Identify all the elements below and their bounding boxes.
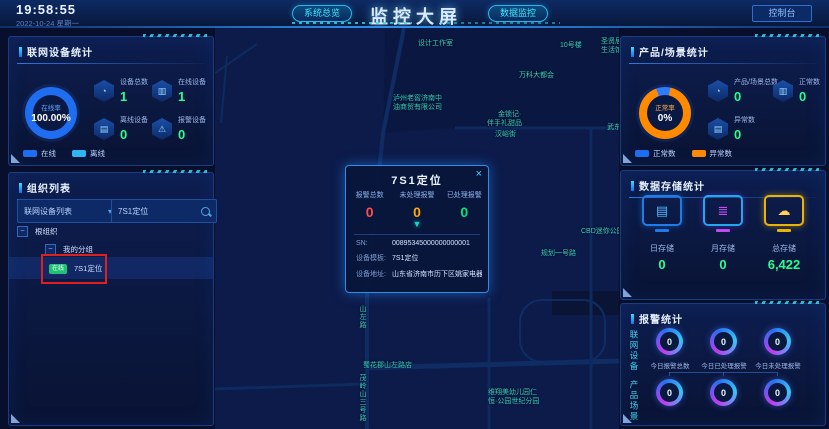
map-label: 恒·公园世纪分园	[488, 396, 539, 406]
map-label: 蜀花郡山左路店	[363, 360, 412, 370]
search-value: 7S1定位	[118, 206, 148, 217]
gauge-value: 0	[768, 332, 787, 351]
stat-label: 异常数	[734, 115, 755, 125]
legend-label: 在线	[41, 148, 56, 159]
title-accent-bar	[631, 181, 634, 191]
legend-swatch	[692, 150, 706, 157]
gauge-today-handled: 0	[710, 328, 737, 355]
map-label: 规划一号路	[541, 248, 576, 258]
storage-value: 0	[631, 257, 693, 272]
close-icon[interactable]: ×	[476, 169, 482, 180]
clock: 19:58:55 2022-10-24 星期一	[16, 2, 79, 29]
tree-label: 7S1定位	[74, 263, 102, 274]
gauge-label: 今日已处理报警	[693, 360, 755, 370]
stat-value: 1	[120, 89, 148, 104]
gauge-value: 0	[768, 383, 787, 402]
time-text: 19:58:55	[16, 2, 79, 17]
device-stats-panel: 联网设备统计 在线率 100.00% ◔ 设备总数 1 ▥ 在线设备 1 ▤ 离…	[8, 36, 214, 166]
donut-value: 100.00%	[31, 113, 70, 124]
popup-title: 7S1定位	[346, 172, 488, 188]
stat-value: 1	[178, 89, 206, 104]
stat-label: 产品/场景总数	[734, 77, 778, 87]
collapse-icon[interactable]: −	[45, 244, 56, 255]
normal-rate-donut: 正常率 0%	[639, 87, 691, 139]
map-label: CBD迷你公园	[581, 226, 619, 236]
stat-product-total: ◔ 产品/场景总数 0	[708, 77, 778, 104]
gauge-product-handled: 0	[710, 379, 737, 406]
gauge-product-total: 0	[656, 379, 683, 406]
gauge-value: 0	[714, 332, 733, 351]
legend-online: 在线	[23, 148, 56, 159]
collapse-icon[interactable]: −	[17, 226, 28, 237]
org-list-panel: 组织列表 联网设备列表 ▾ 7S1定位 − 根组织 − 我的分组 在线 7S1定…	[8, 172, 214, 426]
title-underline	[629, 63, 817, 64]
device-popup: × 7S1定位 报警总数 0 未处理报警 0 已处理报警 0 ▼ SN: 008…	[345, 165, 489, 293]
monitor-stand	[777, 229, 791, 232]
top-header: 19:58:55 2022-10-24 星期一 系统总览 监控大屏 数据监控 控…	[0, 0, 829, 28]
stat-label: 报警总数	[346, 190, 393, 200]
popup-stat-unhandled: 未处理报警 0	[393, 190, 440, 220]
group-label-products: 产品场景	[628, 380, 640, 422]
title-accent-bar	[631, 47, 634, 57]
popup-field-address: 设备地址: 山东省济南市历下区姚家电器规划一—…	[356, 269, 482, 279]
map-label: 设计工作室	[418, 38, 453, 48]
legend-label: 离线	[90, 148, 105, 159]
map-label: 伴手礼甜品	[487, 118, 522, 128]
popup-stat-handled: 已处理报警 0	[441, 190, 488, 220]
device-list-dropdown[interactable]: 联网设备列表 ▾	[17, 199, 119, 223]
stat-label: 正常数	[799, 77, 820, 87]
stat-value: 0	[393, 204, 440, 220]
stat-label: 已处理报警	[441, 190, 488, 200]
database-icon: ≣	[718, 204, 729, 217]
stat-device-total: ◔ 设备总数 1	[94, 77, 148, 104]
field-label: SN:	[356, 240, 392, 247]
legend-swatch	[72, 150, 86, 157]
tree-node-device[interactable]: 在线 7S1定位	[49, 263, 102, 274]
search-icon	[201, 207, 210, 216]
legend-swatch	[635, 150, 649, 157]
stat-product-abnormal: ▤ 异常数 0	[708, 115, 755, 142]
panel-title: 联网设备统计	[27, 44, 93, 59]
map-label: 油商贸有限公司	[393, 102, 442, 112]
gauge-today-total: 0	[656, 328, 683, 355]
storage-daily: ▤ 日存储 0	[631, 195, 693, 272]
field-label: 设备地址:	[356, 269, 392, 279]
stat-value: 0	[734, 127, 755, 142]
tree-label: 根组织	[35, 226, 58, 237]
field-value: 00895345000000000001	[392, 240, 470, 247]
donut-label: 在线率	[41, 102, 61, 112]
legend-label: 正常数	[653, 148, 676, 159]
bracket-tick	[777, 372, 778, 376]
legend-offline: 离线	[72, 148, 105, 159]
popup-field-template: 设备模板: 7S1定位	[356, 253, 482, 263]
stat-value: 0	[441, 204, 488, 220]
panel-title: 组织列表	[27, 180, 71, 195]
stat-device-online: ▥ 在线设备 1	[152, 77, 206, 104]
product-stats-panel: 产品/场景统计 正常率 0% ◔ 产品/场景总数 0 ▥ 正常数 0 ▤ 异常数…	[620, 36, 826, 166]
stat-value: 0	[346, 204, 393, 220]
storage-label: 月存储	[692, 243, 754, 254]
pie-icon: ◔	[94, 80, 114, 102]
stat-value: 0	[734, 89, 778, 104]
stat-label: 报警设备	[178, 115, 206, 125]
stat-label: 在线设备	[178, 77, 206, 87]
tree-label: 我的分组	[63, 244, 93, 255]
gauge-label: 今日报警总数	[639, 360, 701, 370]
gauge-value: 0	[660, 383, 679, 402]
product-legend: 正常数 异常数	[635, 148, 732, 159]
header-deco-dots	[440, 22, 560, 24]
map-label: 生活馆	[601, 45, 619, 55]
title-accent-bar	[19, 47, 22, 57]
map-label: 万科大都会	[519, 70, 554, 80]
dropdown-value: 联网设备列表	[24, 206, 72, 217]
abnormal-icon: ▤	[708, 118, 728, 140]
legend-swatch	[23, 150, 37, 157]
monitor-stand	[716, 229, 730, 232]
gauge-label: 今日未处理报警	[747, 360, 809, 370]
stat-value: 0	[120, 127, 148, 142]
title-accent-bar	[631, 314, 634, 324]
map-marker-icon: ▼	[346, 219, 488, 229]
legend-label: 异常数	[710, 148, 733, 159]
bracket-tick	[723, 372, 724, 376]
pie-icon: ◔	[708, 80, 728, 102]
storage-monthly: ≣ 月存储 0	[692, 195, 754, 272]
stat-product-normal: ▥ 正常数 0	[773, 77, 820, 104]
panel-title: 数据存储统计	[639, 178, 705, 193]
gauge-today-unhandled: 0	[764, 328, 791, 355]
header-deco-dots	[292, 22, 412, 24]
popup-field-sn: SN: 00895345000000000001	[356, 240, 482, 247]
popup-divider	[354, 234, 480, 235]
map-area[interactable]: 设计工作室 10号楼 圣贤居 生活馆 万科大都会 泸州老窖济南中 油商贸有限公司…	[215, 28, 619, 429]
legend-abnormal: 异常数	[692, 148, 733, 159]
map-label: 山左路	[357, 305, 367, 329]
panel-title: 报警统计	[639, 311, 683, 326]
selected-row-highlight	[9, 257, 213, 279]
field-value: 7S1定位	[392, 253, 418, 263]
stat-label: 未处理报警	[393, 190, 440, 200]
storage-stats-panel: 数据存储统计 ▤ 日存储 0 ≣ 月存储 0 ☁↑ 总存储 6,422	[620, 170, 826, 300]
legend-normal: 正常数	[635, 148, 676, 159]
bracket-tick	[669, 372, 670, 376]
online-status-badge: 在线	[49, 264, 67, 274]
storage-value: 0	[692, 257, 754, 272]
document-icon: ▤	[656, 204, 668, 217]
monitor-icon: ▥	[152, 80, 172, 102]
console-button[interactable]: 控制台	[752, 5, 812, 22]
field-value: 山东省济南市历下区姚家电器规划一—…	[392, 269, 482, 279]
storage-label: 日存储	[631, 243, 693, 254]
panel-title: 产品/场景统计	[639, 44, 709, 59]
upload-arrow-icon: ↑	[782, 206, 786, 213]
stat-device-alarm: ⚠ 报警设备 0	[152, 115, 206, 142]
monitor-icon: ▥	[773, 80, 793, 102]
stat-value: 0	[799, 89, 820, 104]
title-accent-bar	[19, 183, 22, 193]
map-label: 10号楼	[560, 40, 582, 50]
tree-node-group[interactable]: − 我的分组	[45, 244, 93, 255]
device-legend: 在线 离线	[23, 148, 105, 159]
title-underline	[17, 63, 205, 64]
storage-label: 总存储	[753, 243, 815, 254]
monitor-stand	[655, 229, 669, 232]
search-input[interactable]: 7S1定位	[111, 199, 217, 223]
tree-node-root[interactable]: − 根组织	[17, 226, 58, 237]
tab-data-monitor[interactable]: 数据监控	[488, 5, 548, 22]
popup-stat-total: 报警总数 0	[346, 190, 393, 220]
gauge-value: 0	[660, 332, 679, 351]
alarm-stats-panel: 报警统计 联网设备 产品场景 0 0 0 今日报警总数 今日已处理报警 今日未处…	[620, 303, 826, 426]
gauge-value: 0	[714, 383, 733, 402]
gauge-product-unhandled: 0	[764, 379, 791, 406]
map-label: 武东	[607, 122, 619, 132]
map-label: 汉峪街	[495, 129, 516, 139]
stat-device-offline: ▤ 离线设备 0	[94, 115, 148, 142]
tab-system-overview[interactable]: 系统总览	[292, 5, 352, 22]
stat-label: 设备总数	[120, 77, 148, 87]
stat-label: 离线设备	[120, 115, 148, 125]
online-rate-donut: 在线率 100.00%	[25, 87, 77, 139]
stat-value: 0	[178, 127, 206, 142]
alarm-icon: ⚠	[152, 118, 172, 140]
storage-total: ☁↑ 总存储 6,422	[753, 195, 815, 272]
map-label: 茂岭山三号路	[357, 374, 367, 422]
field-label: 设备模板:	[356, 253, 392, 263]
storage-value: 6,422	[753, 257, 815, 272]
offline-icon: ▤	[94, 118, 114, 140]
donut-value: 0%	[658, 113, 672, 124]
donut-label: 正常率	[655, 102, 675, 112]
